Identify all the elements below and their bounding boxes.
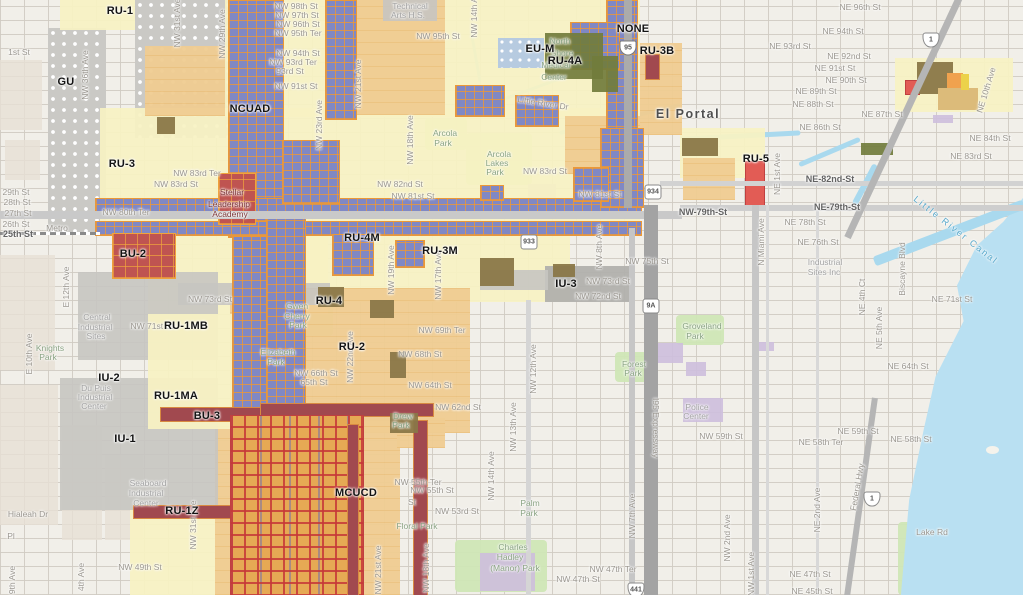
bay-island — [986, 446, 999, 454]
street-label-vertical: 9th Ave — [7, 566, 17, 594]
street-label: NW 95th St — [416, 31, 459, 41]
place-label: Park — [392, 420, 409, 430]
street-label: NE 58th Ter — [799, 437, 844, 447]
major-street-label: NE-82nd-St — [806, 174, 855, 184]
place-label: Park — [486, 167, 503, 177]
major-street-label: NW-79th-St — [679, 207, 727, 217]
street-label: NW 59th St — [699, 431, 742, 441]
highway-shield-934: 934 — [645, 185, 662, 200]
street-label-vertical: NW 8th Ave — [594, 225, 604, 270]
street-label: NW 73rd St — [586, 276, 630, 286]
zoning-district-label: RU-1MA — [154, 390, 198, 402]
place-label: Park — [624, 368, 641, 378]
place-label: Hadley — [497, 552, 523, 562]
zoning-district-label: RU-1MB — [164, 320, 208, 332]
zoning-area-zyl — [961, 74, 969, 90]
street-label-vertical: NW 17th Ave — [433, 250, 443, 299]
zoning-district-label: BU-2 — [120, 248, 146, 260]
street-label: 27th St — [5, 208, 32, 218]
place-label: Charles — [498, 542, 527, 552]
street-label: NE 78th St — [784, 217, 825, 227]
street-label-vertical: NW 31st Ave — [172, 0, 182, 47]
street-label: NW 80th Ter — [102, 207, 149, 217]
zoning-district-label: NONE — [617, 23, 650, 35]
street-label: NE 76th St — [797, 237, 838, 247]
street-label: NE 90th St — [825, 75, 866, 85]
zoning-area-zk — [370, 300, 394, 318]
street-label: 65th St — [301, 377, 328, 387]
zoning-area-zb — [455, 85, 505, 117]
street-label-vertical: NE 2nd Ave — [812, 488, 822, 533]
street-label: Pl — [7, 531, 15, 541]
highway-shield-441: 441 — [628, 583, 645, 595]
street-label: NE 58th St — [890, 434, 931, 444]
street-label: NW 53rd St — [435, 506, 479, 516]
street-label: NW 91st St — [275, 81, 318, 91]
street-label-vertical: NW 21st Ave — [373, 546, 383, 595]
street-label: NE 84th St — [969, 133, 1010, 143]
place-label: Stellar — [220, 187, 244, 197]
zoning-district-label: RU-4M — [344, 232, 380, 244]
zoning-district-label: NCUAD — [230, 103, 271, 115]
zoning-district-label: RU-2 — [339, 341, 365, 353]
place-label: Sites — [87, 331, 106, 341]
zoning-district-label: BU-3 — [194, 410, 220, 422]
street-label-vertical: Biscayne Blvd — [897, 242, 907, 295]
zoning-area-zo — [145, 46, 225, 116]
street-label-vertical: NE 4th Ct — [857, 279, 867, 316]
street-label-vertical: I95 Expressway — [651, 398, 661, 458]
place-label: Center — [541, 72, 567, 82]
street-label: Lake Rd — [916, 527, 948, 537]
zoning-area-zo — [683, 158, 735, 200]
street-label: NE 93rd St — [769, 41, 811, 51]
street-label: 28th St — [4, 197, 31, 207]
highway-shield-9A: 9A — [643, 299, 660, 314]
place-label: Academy — [212, 209, 247, 219]
zoning-district-label: RU-4 — [316, 295, 342, 307]
civic-area — [655, 343, 683, 363]
place-label: Park — [289, 320, 306, 330]
zoning-district-label: RU-3 — [109, 158, 135, 170]
street-label: NE 83rd St — [950, 151, 992, 161]
place-label: Palm — [520, 498, 539, 508]
street-label-vertical: NW 13th Ave — [508, 402, 518, 451]
street-label: 93rd St — [276, 66, 303, 76]
zoning-area-zm — [347, 424, 359, 595]
street-label-vertical: NW 36th Ave — [80, 50, 90, 99]
civic-area — [686, 362, 706, 376]
street-label: NE 89th St — [795, 86, 836, 96]
street-label: NW 49th St — [118, 562, 161, 572]
street-label-vertical: N Miami Ave — [756, 218, 766, 266]
place-label: Sites Inc — [808, 267, 841, 277]
street-label-vertical: NW 14th Ave — [469, 0, 479, 38]
zoning-district-label: RU-3B — [640, 45, 675, 57]
street-label: NE 86th St — [799, 122, 840, 132]
street-label: NW 82nd St — [377, 179, 423, 189]
street-label: NW 64th St — [408, 380, 451, 390]
basemap-block — [5, 140, 40, 180]
place-label: Central — [83, 312, 110, 322]
street-label: Metro — [46, 223, 68, 233]
zoning-district-label: RU-1 — [107, 5, 133, 17]
street-label: NE 92nd St — [827, 51, 870, 61]
zoning-area-zt — [938, 88, 978, 110]
street-label: NE 45th St — [791, 586, 832, 595]
street-label: NE 94th St — [822, 26, 863, 36]
street-label: NE 88th St — [792, 99, 833, 109]
place-label: Arts H.S. — [391, 10, 425, 20]
place-label: Park — [686, 331, 703, 341]
zoning-district-label: GU — [58, 76, 75, 88]
place-label: Park — [267, 357, 284, 367]
street-label-vertical: 4th Ave — [76, 563, 86, 591]
street-label-vertical: NW 18th Ave — [421, 543, 431, 592]
street-label: NW 81st St — [579, 189, 622, 199]
place-label: Groveland — [682, 321, 721, 331]
basemap-block — [0, 385, 58, 525]
zoning-area-zb — [480, 185, 504, 201]
place-label: Gwen — [286, 301, 308, 311]
zoning-district-label: IU-2 — [98, 372, 120, 384]
street-label: NW 81st St — [392, 191, 435, 201]
street-label: NE 91st St — [815, 63, 856, 73]
zoning-area-zk — [480, 258, 514, 286]
place-label: Seaboard — [130, 478, 167, 488]
place-label: El Portal — [656, 107, 720, 121]
place-label: Park — [520, 508, 537, 518]
place-label: (Manor) Park — [490, 563, 540, 573]
place-label: Elizabeth — [261, 347, 296, 357]
place-label: Center — [81, 401, 107, 411]
map-canvas[interactable]: El PortalStellarLeadershipAcademyTechnic… — [0, 0, 1023, 595]
major-street-label: NE-79th-St — [814, 202, 860, 212]
street-label: NW 62nd St — [435, 402, 481, 412]
zoning-district-label: RU-3M — [422, 245, 458, 257]
street-label: NW 83rd Ter — [173, 168, 221, 178]
zoning-district-label: IU-1 — [114, 433, 136, 445]
street-label-vertical: NW 14th Ave — [486, 451, 496, 500]
place-label: Arcola — [433, 128, 457, 138]
zoning-area-zl — [933, 115, 953, 123]
street-label: NW 75th St — [625, 256, 668, 266]
place-label: Park — [39, 352, 56, 362]
place-label: Park — [434, 138, 451, 148]
zoning-district-label: EU-M — [526, 43, 555, 55]
street-label: NE 96th St — [839, 2, 880, 12]
street-label: NW 47th Ter — [589, 564, 636, 574]
zoning-area-zb — [282, 140, 340, 204]
street-label: NW 72nd St — [575, 291, 621, 301]
street-label-vertical: NW 1st Ave — [746, 552, 756, 595]
street-label: NW 68th St — [398, 349, 441, 359]
highway-shield-933: 933 — [521, 235, 538, 250]
street-label: 29th St — [3, 187, 30, 197]
street-label-vertical: NE 1st Ave — [772, 153, 782, 195]
street-label-vertical: NW 12th Ave — [528, 344, 538, 393]
street-label-vertical: NW 19th Ave — [386, 245, 396, 294]
place-label: Center — [133, 498, 159, 508]
street-label-vertical: NW 29th Ave — [217, 9, 227, 58]
zoning-area-zb — [232, 236, 270, 418]
zoning-district-label: MCUCD — [335, 487, 377, 499]
street-label: NW 83rd St — [154, 179, 198, 189]
zoning-district-label: RU-4A — [548, 55, 583, 67]
street-label: NW 95th Ter — [274, 28, 321, 38]
street-label-vertical: NW 21st Ave — [353, 60, 363, 109]
place-label: Industrial — [808, 257, 843, 267]
place-label: Center — [683, 411, 709, 421]
street-label: NE 59th St — [837, 426, 878, 436]
street-label-vertical: E 12th Ave — [61, 267, 71, 308]
street-label-vertical: NW 2nd Ave — [722, 514, 732, 561]
street-label: NW 55th St — [410, 485, 453, 495]
road-line — [766, 205, 769, 595]
place-label: Industrial — [129, 488, 164, 498]
zoning-area-zm — [645, 54, 660, 80]
street-label: NW 47th St — [556, 574, 599, 584]
street-label: NE 47th St — [789, 569, 830, 579]
street-label-vertical: E 10th Ave — [24, 334, 34, 375]
zoning-area-zk — [553, 264, 575, 277]
basemap-block — [0, 60, 42, 130]
street-label-vertical: NW 7th Ave — [627, 494, 637, 539]
street-label-vertical: NW 22nd Ave — [345, 331, 355, 383]
zoning-area-zk — [157, 117, 175, 134]
zoning-district-label: IU-3 — [555, 278, 577, 290]
street-label: NE 64th St — [887, 361, 928, 371]
zoning-area-zv — [592, 56, 618, 92]
street-label: NW 73rd St — [188, 294, 232, 304]
street-label: 26th St — [3, 219, 30, 229]
street-label: 1st St — [8, 47, 30, 57]
zoning-area-zgrid — [230, 415, 364, 595]
major-street-label: 25th St — [3, 229, 33, 239]
street-label-vertical: NE 5th Ave — [874, 307, 884, 349]
zoning-area-zb — [395, 240, 425, 268]
zoning-area-zk — [682, 138, 718, 156]
street-label: NW 83rd St — [523, 166, 567, 176]
zoning-district-label: RU-5 — [743, 153, 769, 165]
street-label-vertical: NW 18th Ave — [405, 115, 415, 164]
street-label: Hialeah Dr — [8, 509, 48, 519]
zoning-district-label: RU-1Z — [165, 505, 198, 517]
street-label: NE 87th St — [861, 109, 902, 119]
place-label: Leadership — [208, 199, 250, 209]
place-label: Floral Park — [396, 521, 437, 531]
street-label: NE 71st St — [932, 294, 973, 304]
street-label: NW 69th Ter — [418, 325, 465, 335]
street-label: St — [408, 497, 416, 507]
street-label-vertical: NW 23rd Ave — [314, 100, 324, 150]
